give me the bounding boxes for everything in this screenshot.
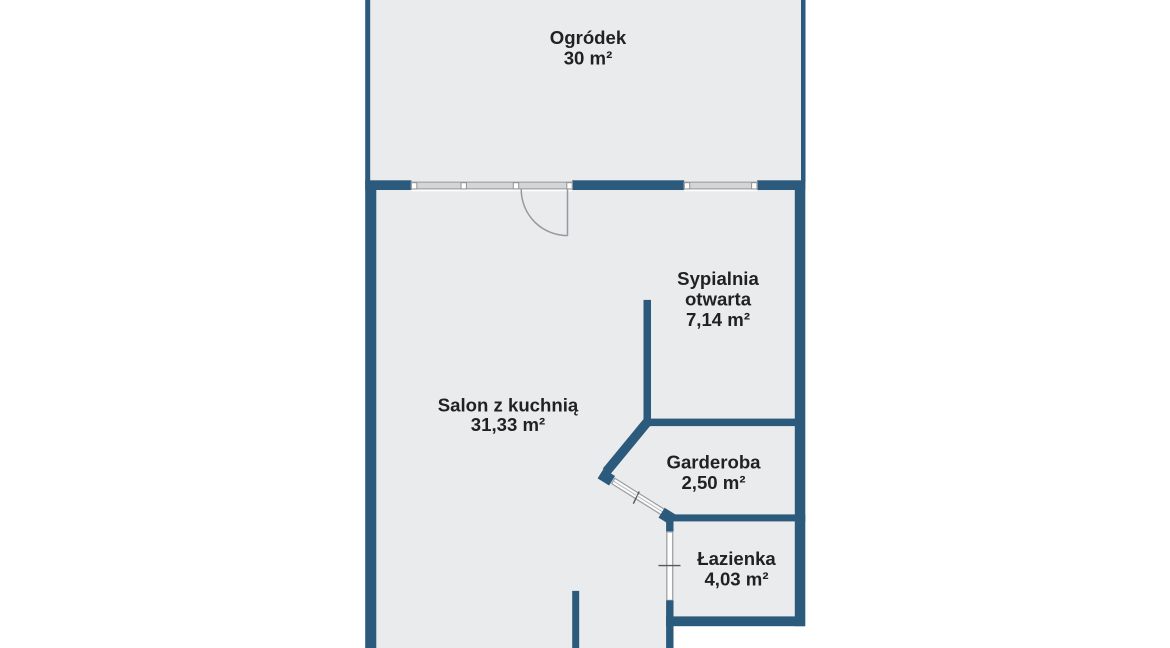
svg-text:Ogródek: Ogródek [550, 27, 627, 48]
svg-text:30 m²: 30 m² [564, 47, 613, 68]
svg-text:Łazienka: Łazienka [697, 548, 776, 569]
svg-text:7,14 m²: 7,14 m² [686, 309, 750, 330]
svg-text:2,50 m²: 2,50 m² [681, 472, 745, 493]
svg-text:Sypialnia: Sypialnia [677, 268, 759, 289]
svg-text:4,03 m²: 4,03 m² [704, 569, 768, 590]
svg-text:otwarta: otwarta [685, 288, 752, 309]
svg-text:Salon z kuchnią: Salon z kuchnią [438, 394, 579, 415]
svg-text:Garderoba: Garderoba [666, 451, 761, 472]
svg-text:31,33 m²: 31,33 m² [471, 414, 545, 435]
